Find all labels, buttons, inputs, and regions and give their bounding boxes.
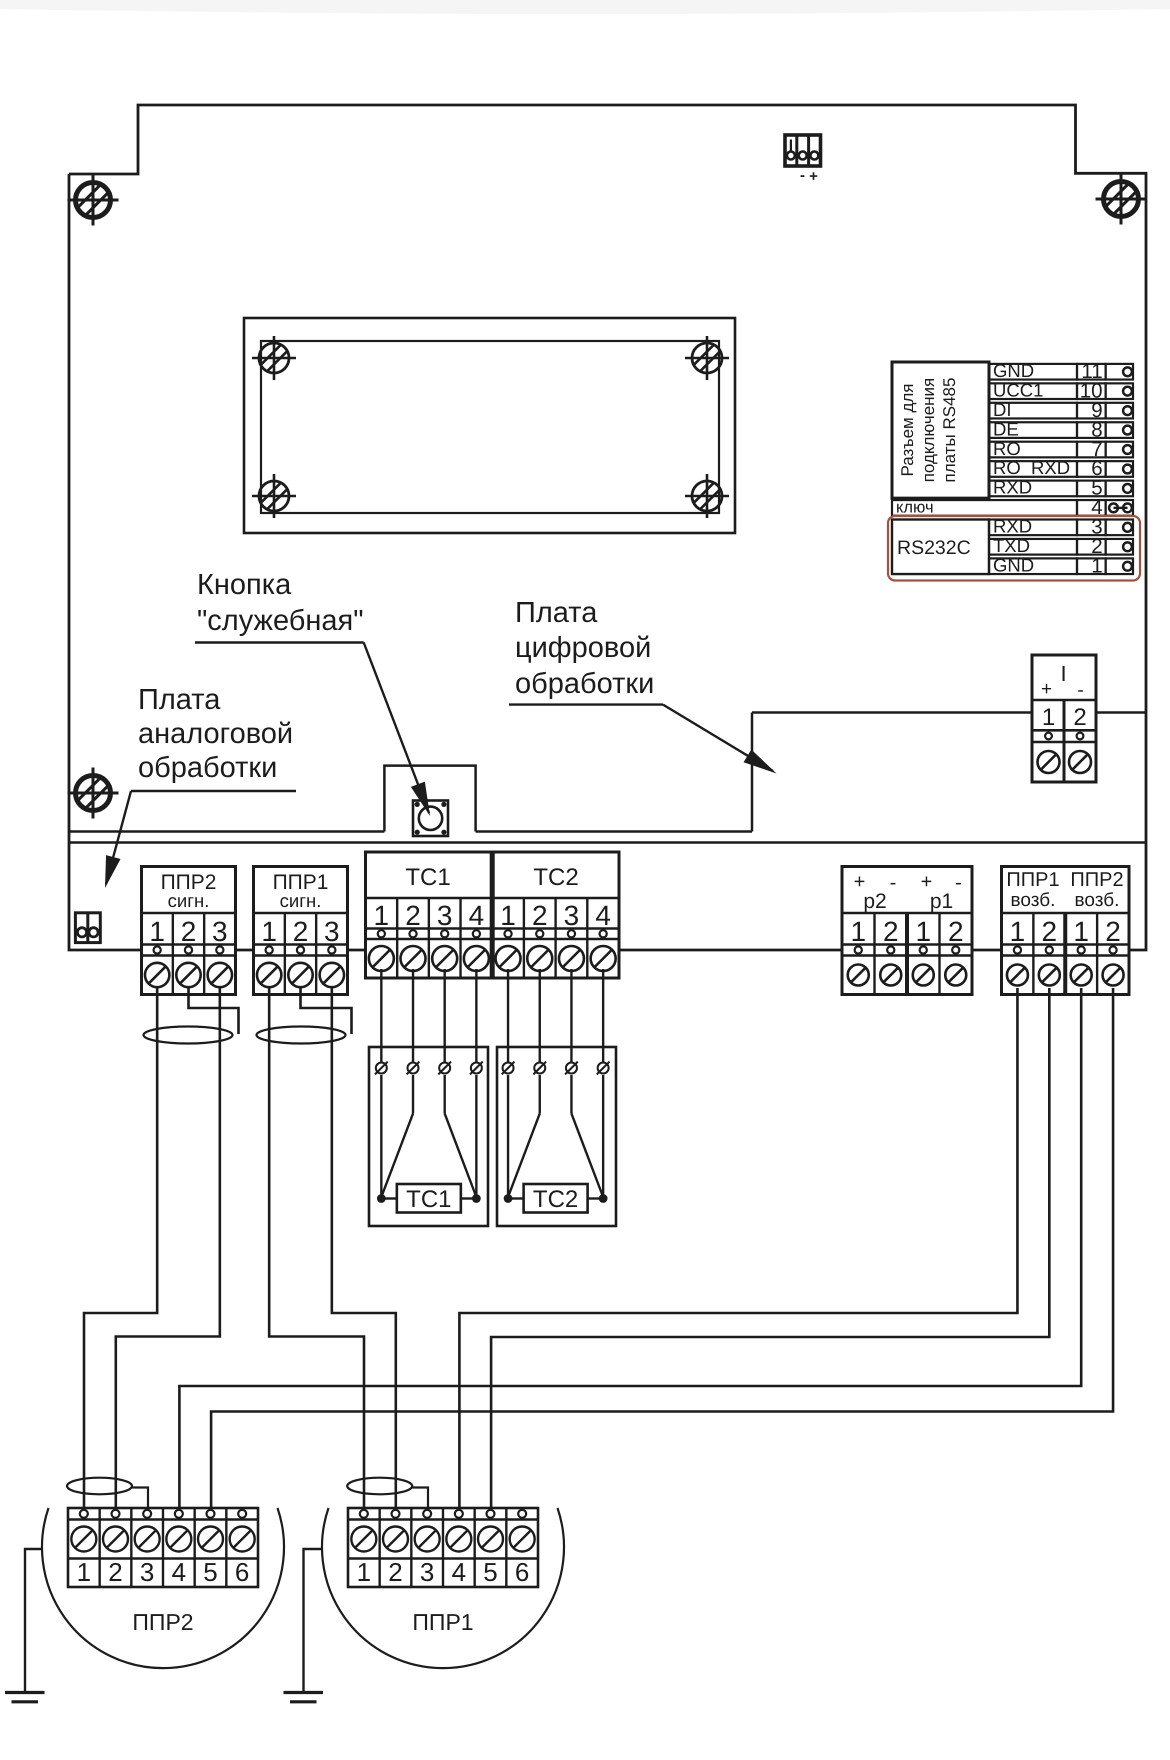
svg-text:2: 2 (108, 1557, 122, 1587)
svg-text:p2: p2 (863, 890, 886, 913)
svg-text:Плата: Плата (515, 597, 598, 629)
svg-text:Разъем для: Разъем для (898, 384, 917, 477)
svg-text:ППР2: ППР2 (132, 1609, 193, 1635)
svg-text:DE: DE (993, 418, 1019, 439)
svg-text:платы RS485: платы RS485 (940, 378, 959, 483)
svg-text:цифровой: цифровой (515, 632, 651, 664)
svg-text:2: 2 (1105, 916, 1121, 947)
svg-text:ТС1: ТС1 (406, 1186, 451, 1213)
svg-text:5: 5 (203, 1557, 217, 1587)
svg-text:ППР1: ППР1 (1006, 869, 1059, 891)
svg-text:DI: DI (993, 399, 1012, 420)
svg-text:"служебная": "служебная" (197, 605, 364, 637)
svg-text:2: 2 (181, 916, 197, 947)
svg-text:2: 2 (388, 1557, 402, 1587)
svg-text:2: 2 (1042, 916, 1058, 947)
svg-text:4: 4 (595, 900, 611, 931)
svg-text:ТС2: ТС2 (533, 1186, 578, 1213)
svg-text:TXD: TXD (993, 535, 1030, 556)
svg-text:RS232C: RS232C (897, 537, 971, 559)
svg-text:1: 1 (1073, 916, 1089, 947)
svg-text:1: 1 (1091, 554, 1102, 577)
svg-text:ТС1: ТС1 (405, 864, 450, 891)
svg-text:2: 2 (1073, 704, 1086, 731)
svg-text:3: 3 (437, 900, 453, 931)
svg-text:4: 4 (452, 1557, 466, 1587)
svg-text:ключ: ключ (896, 499, 934, 517)
svg-text:1: 1 (1010, 916, 1026, 947)
svg-text:1: 1 (850, 916, 866, 947)
svg-text:3: 3 (564, 900, 580, 931)
svg-text:ППР1: ППР1 (412, 1609, 473, 1635)
svg-text:возб.: возб. (1075, 890, 1120, 911)
svg-text:2: 2 (532, 900, 548, 931)
svg-text:2: 2 (883, 916, 899, 947)
svg-text:GND: GND (993, 360, 1034, 381)
svg-text:p1: p1 (930, 890, 953, 913)
svg-text:1: 1 (1042, 704, 1055, 731)
svg-text:4: 4 (172, 1557, 186, 1587)
svg-text:4: 4 (469, 900, 485, 931)
svg-text:Плата: Плата (138, 684, 221, 716)
svg-text:Кнопка: Кнопка (197, 569, 292, 601)
svg-text:сигн.: сигн. (280, 890, 322, 911)
svg-text:6: 6 (235, 1557, 249, 1587)
svg-text:RXD: RXD (993, 477, 1032, 498)
svg-text:6: 6 (515, 1557, 529, 1587)
svg-text:2: 2 (293, 916, 309, 947)
svg-text:обработки: обработки (515, 668, 654, 700)
svg-text:сигн.: сигн. (168, 890, 210, 911)
svg-text:RO_RXD: RO_RXD (993, 457, 1070, 478)
svg-text:1: 1 (149, 916, 165, 947)
svg-text:подключения: подключения (919, 378, 938, 483)
svg-text:ТС2: ТС2 (533, 864, 578, 891)
svg-text:I: I (1060, 661, 1066, 686)
svg-text:3: 3 (212, 916, 228, 947)
svg-text:1: 1 (915, 916, 931, 947)
svg-text:GND: GND (993, 554, 1034, 575)
svg-text:3: 3 (140, 1557, 154, 1587)
svg-text:3: 3 (324, 916, 340, 947)
svg-text:RO: RO (993, 438, 1021, 459)
svg-text:аналоговой: аналоговой (138, 718, 293, 750)
svg-text:-: - (800, 167, 805, 184)
svg-text:-: - (955, 872, 962, 894)
svg-text:1: 1 (500, 900, 516, 931)
svg-text:ППР2: ППР2 (1070, 869, 1123, 891)
svg-text:+: + (809, 168, 818, 185)
svg-text:2: 2 (948, 916, 964, 947)
svg-text:RXD: RXD (993, 516, 1032, 537)
svg-text:+: + (1041, 679, 1052, 700)
svg-text:1: 1 (77, 1557, 91, 1587)
svg-text:5: 5 (483, 1557, 497, 1587)
svg-text:1: 1 (261, 916, 277, 947)
svg-text:-: - (1077, 680, 1083, 701)
svg-text:2: 2 (405, 900, 421, 931)
svg-text:UCC1: UCC1 (993, 379, 1043, 400)
svg-text:-: - (890, 872, 897, 894)
svg-text:1: 1 (357, 1557, 371, 1587)
svg-text:возб.: возб. (1011, 890, 1056, 911)
svg-text:обработки: обработки (138, 752, 277, 784)
svg-text:3: 3 (420, 1557, 434, 1587)
svg-text:1: 1 (374, 900, 390, 931)
